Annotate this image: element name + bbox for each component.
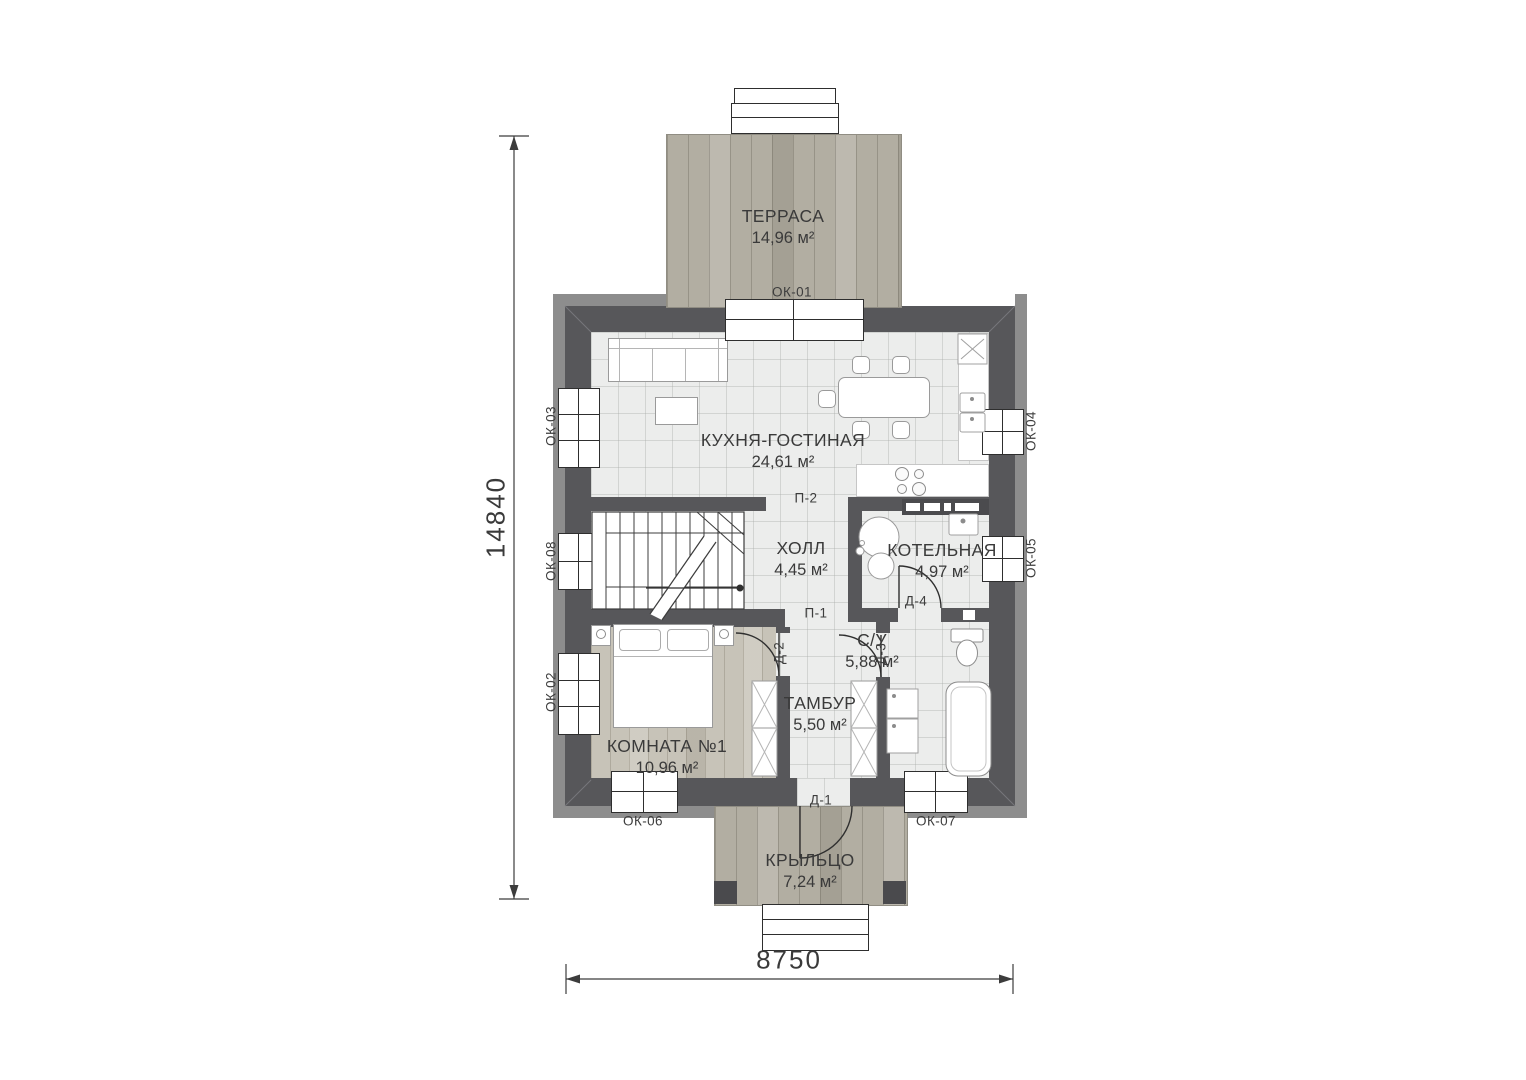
opening-tag-p1: П-1 (805, 606, 828, 621)
terrace-step (734, 88, 836, 104)
terrace-step (731, 117, 839, 134)
chair (892, 356, 910, 374)
dimension-height-label: 14840 (481, 476, 512, 558)
kitchen-counter-bottom (856, 464, 989, 497)
chair (818, 390, 836, 408)
window-ok-02 (558, 653, 600, 735)
door-tag-d3: Д-3 (874, 643, 889, 665)
opening-tag-p2: П-2 (795, 491, 818, 506)
window-tag-ok-04: ОК-04 (1024, 411, 1039, 451)
sofa (608, 338, 728, 382)
porch-step (762, 904, 869, 920)
floor-plan-canvas: ТЕРРАСА14,96 м² КУХНЯ-ГОСТИНАЯ24,61 м² Х… (0, 0, 1526, 1080)
room-label-hall: ХОЛЛ4,45 м² (774, 538, 828, 580)
room-label-tambour: ТАМБУР5,50 м² (784, 693, 857, 735)
lamp (596, 629, 606, 639)
window-ok-07 (904, 771, 968, 813)
porch-step (762, 919, 869, 935)
window-tag-ok-06: ОК-06 (623, 814, 663, 829)
pillow (667, 629, 709, 651)
window-ok-04 (982, 409, 1024, 455)
wall-tambour-west-stub (776, 627, 790, 633)
porch-post-left (714, 881, 737, 904)
chair (852, 356, 870, 374)
dining-table (838, 377, 930, 418)
wall-boiler-west (848, 511, 862, 608)
window-tag-ok-07: ОК-07 (916, 814, 956, 829)
window-tag-ok-02: ОК-02 (544, 672, 559, 712)
door-tag-d4: Д-4 (905, 594, 927, 609)
room-label-porch: КРЫЛЬЦО7,24 м² (765, 850, 854, 892)
room-label-bathroom: С/У5,88 м² (845, 630, 899, 672)
window-tag-ok-08: ОК-08 (544, 541, 559, 581)
coffee-table (655, 397, 698, 425)
pillow (619, 629, 661, 651)
chair (892, 421, 910, 439)
room-label-boiler: КОТЕЛЬНАЯ4,97 м² (887, 540, 997, 582)
window-tag-ok-03: ОК-03 (544, 406, 559, 446)
wall-tambour-east (876, 677, 890, 778)
porch-post-right (883, 881, 906, 904)
room-label-room1: КОМНАТА №110,96 м² (607, 736, 727, 778)
door-tag-d1: Д-1 (810, 793, 832, 808)
door-tag-d2: Д-2 (772, 642, 787, 664)
window-tag-ok-01: ОК-01 (772, 285, 812, 300)
eaves-band-top (553, 294, 666, 306)
window-ok-08 (558, 533, 600, 590)
wall-boiler-south-a (848, 608, 898, 622)
lamp (719, 629, 729, 639)
bath-wall-niche (963, 610, 975, 620)
window-ok-01 (725, 299, 864, 341)
window-tag-ok-05: ОК-05 (1024, 538, 1039, 578)
room-label-terrace: ТЕРРАСА14,96 м² (742, 206, 825, 248)
dimension-width-label: 8750 (756, 945, 822, 976)
wall-kitchen-south-west (591, 497, 766, 511)
room-label-kitchen-living: КУХНЯ-ГОСТИНАЯ24,61 м² (701, 430, 865, 472)
window-ok-03 (558, 388, 600, 468)
boiler-shelf (902, 499, 989, 515)
